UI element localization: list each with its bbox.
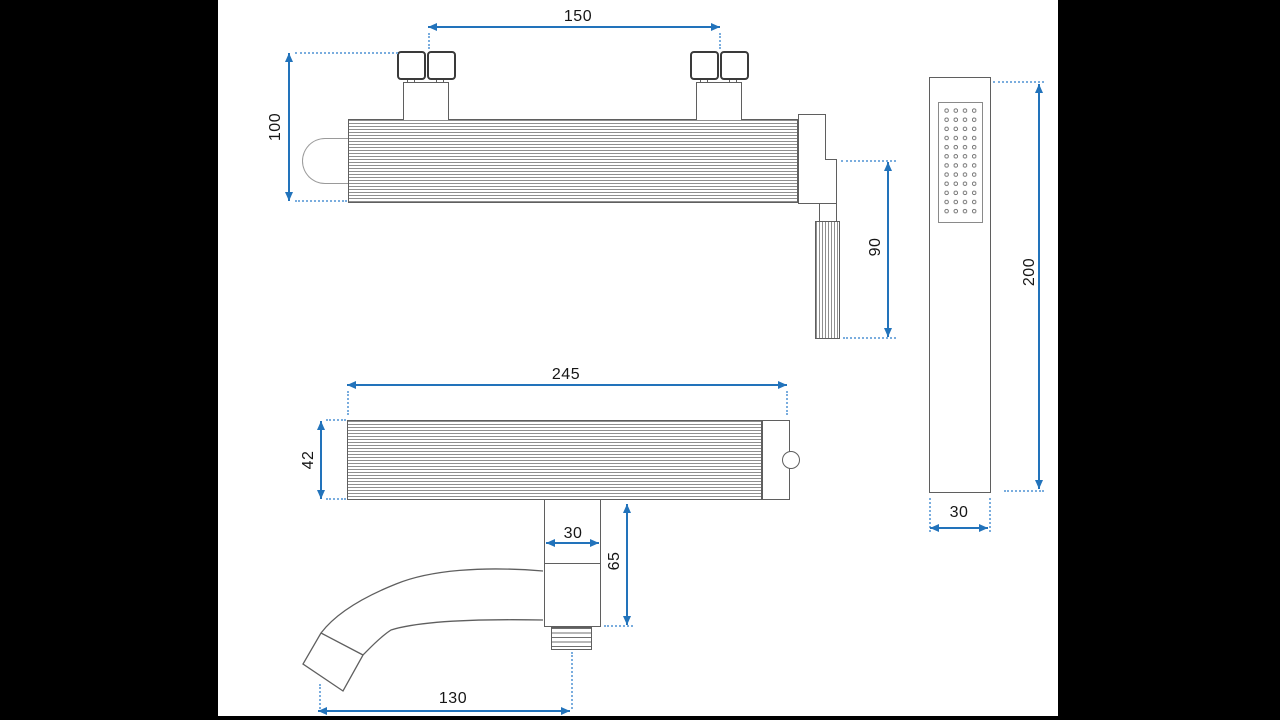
top-body	[347, 420, 762, 500]
inlet-nut-left-a	[397, 51, 426, 80]
dim-body-height-label: 100	[267, 113, 285, 141]
matte-bottom	[0, 716, 1280, 720]
dim-body-depth-leader-top	[326, 419, 346, 421]
dim-body-depth-leader-bottom	[326, 498, 346, 500]
dim-shower-length-line	[1038, 84, 1040, 489]
dim-body-depth-line	[320, 421, 322, 499]
dim-body-height-leader-bottom	[295, 200, 347, 202]
dim-spout-reach-label: 130	[439, 690, 467, 708]
dim-inlet-spacing-leader-right	[719, 33, 721, 49]
dim-body-height-leader-top	[295, 52, 398, 54]
outlet-thread	[551, 627, 592, 650]
dim-shower-length-leader-top	[993, 81, 1044, 83]
dim-shower-width-label: 30	[950, 504, 969, 522]
dim-shower-length-leader-bottom	[1004, 490, 1044, 492]
inlet-nut-right-a	[690, 51, 719, 80]
dim-shower-width-leader-right	[989, 498, 991, 532]
dim-inlet-spacing-label: 150	[564, 8, 592, 26]
handle-stem	[819, 203, 837, 222]
inlet-stem-right	[696, 82, 742, 120]
matte-left	[0, 0, 218, 720]
dim-body-width-leader-left	[347, 391, 349, 415]
inlet-stem-left	[403, 82, 449, 120]
dim-body-height-line	[288, 53, 290, 201]
dim-handle-length-leader-bottom	[843, 337, 896, 339]
dim-body-width-label: 245	[552, 366, 580, 384]
dim-body-depth-label: 42	[300, 451, 318, 470]
dim-body-width-leader-right	[786, 391, 788, 415]
top-knob	[782, 451, 800, 469]
spout	[290, 560, 570, 700]
front-cap-step	[825, 159, 837, 204]
dim-body-width-line	[347, 384, 787, 386]
dim-spout-drop-line	[626, 504, 628, 625]
spout-block	[544, 564, 601, 627]
inlet-nut-left-b	[427, 51, 456, 80]
dim-spout-reach-line	[318, 710, 570, 712]
front-right-cap	[798, 114, 826, 204]
inlet-nut-right-b	[720, 51, 749, 80]
dim-shower-length-label: 200	[1021, 258, 1039, 286]
matte-right	[1058, 0, 1280, 720]
handle	[815, 221, 840, 339]
dim-handle-length-label: 90	[867, 238, 885, 257]
dim-handle-length-leader-top	[841, 160, 896, 162]
handshower-nozzle-grid	[942, 106, 979, 216]
dim-shower-width-line	[930, 527, 988, 529]
front-body	[348, 119, 798, 203]
dim-inlet-spacing-leader-left	[428, 33, 430, 49]
dim-spout-drop-label: 65	[606, 552, 624, 571]
dim-inlet-spacing-line	[428, 26, 720, 28]
drawing-sheet: 150 100 90 200 30 245 42 30	[0, 0, 1280, 720]
dim-spout-reach-leader-left	[319, 684, 321, 709]
dim-spout-drop-leader	[604, 625, 633, 627]
dim-handle-length-line	[887, 162, 889, 337]
dim-spout-reach-leader-right	[571, 652, 573, 709]
front-left-cap	[302, 138, 350, 184]
dim-spout-offset-label: 30	[564, 525, 583, 543]
dim-spout-offset-line	[546, 542, 599, 544]
